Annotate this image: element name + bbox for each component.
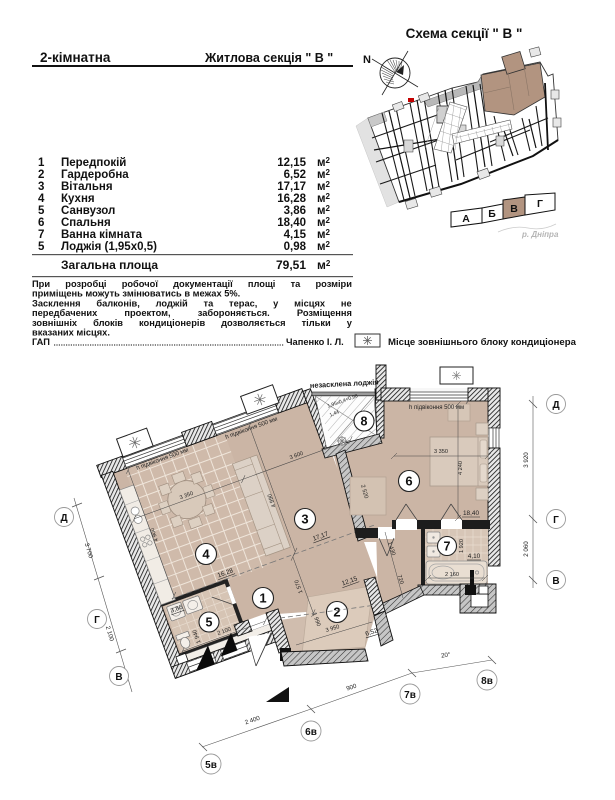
svg-text:вказаних місцях.: вказаних місцях. [32, 328, 110, 338]
svg-text:Засклення балконів, лоджій та: Засклення балконів, лоджій та терас, у м… [32, 298, 352, 308]
svg-text:4: 4 [38, 193, 45, 205]
svg-text:Вітальня: Вітальня [61, 181, 113, 193]
svg-text:5: 5 [38, 241, 45, 253]
svg-text:2 060: 2 060 [523, 541, 530, 557]
svg-text:5: 5 [206, 616, 213, 630]
svg-text:2-кімнатна: 2-кімнатна [40, 50, 111, 65]
svg-text:3 350: 3 350 [434, 449, 448, 455]
svg-text:3: 3 [38, 181, 44, 193]
svg-text:5в: 5в [205, 760, 217, 771]
svg-text:Лоджія (1,95х0,5): Лоджія (1,95х0,5) [61, 241, 157, 253]
svg-text:1: 1 [38, 157, 45, 169]
svg-text:0,98: 0,98 [284, 241, 307, 253]
svg-text:3 920: 3 920 [523, 452, 530, 468]
svg-text:Житлова секція " В ": Житлова секція " В " [204, 51, 333, 65]
svg-text:Схема секції " В ": Схема секції " В " [406, 26, 523, 41]
svg-text:Спальня: Спальня [61, 217, 111, 229]
svg-text:5: 5 [38, 205, 45, 217]
svg-text:Ванна кімната: Ванна кімната [61, 229, 143, 241]
svg-text:2 160: 2 160 [445, 572, 459, 578]
svg-text:8: 8 [361, 415, 368, 429]
svg-text:17,17: 17,17 [277, 181, 306, 193]
svg-text:Кухня: Кухня [61, 193, 95, 205]
svg-text:4: 4 [202, 547, 210, 562]
svg-text:4 240: 4 240 [458, 461, 464, 475]
svg-text:А: А [462, 213, 470, 225]
svg-text:Б: Б [488, 208, 496, 220]
svg-text:18,40: 18,40 [277, 217, 306, 229]
svg-text:Чапенко І. Л.: Чапенко І. Л. [286, 337, 344, 347]
svg-text:N: N [363, 54, 371, 66]
svg-text:2: 2 [38, 169, 44, 181]
svg-text:6в: 6в [305, 727, 317, 738]
svg-text:зовнішніх блоків кондиціонерів: зовнішніх блоків кондиціонерів дозволяєт… [32, 318, 353, 328]
svg-text:ГАП: ГАП [32, 337, 50, 347]
svg-text:Загальна площа: Загальна площа [61, 258, 158, 272]
svg-text:18,40: 18,40 [463, 510, 479, 517]
svg-text:7: 7 [38, 229, 44, 241]
svg-text:Гардеробна: Гардеробна [61, 169, 129, 181]
svg-text:передбачених проектом, заборон: передбачених проектом, забороняється. Ро… [32, 308, 352, 318]
svg-text:Передпокій: Передпокій [61, 157, 126, 169]
svg-text:В: В [552, 576, 559, 587]
svg-text:7в: 7в [404, 690, 416, 701]
svg-text:8в: 8в [481, 676, 493, 687]
svg-text:4,10: 4,10 [468, 553, 481, 560]
svg-text:1: 1 [259, 591, 266, 606]
svg-text:6: 6 [405, 474, 412, 489]
svg-text:Місце зовнішнього блоку кондиц: Місце зовнішнього блоку кондиціонера [388, 337, 577, 348]
svg-text:Г: Г [553, 515, 559, 526]
svg-text:В: В [510, 203, 518, 215]
svg-text:2: 2 [333, 605, 340, 620]
svg-text:Санвузол: Санвузол [61, 205, 115, 217]
svg-text:При розробці робочої документа: При розробці робочої документації площі … [32, 279, 352, 289]
svg-text:3,86: 3,86 [284, 205, 306, 217]
svg-text:4,15: 4,15 [284, 229, 307, 241]
svg-text:7: 7 [444, 540, 451, 554]
svg-text:Г: Г [537, 198, 543, 210]
svg-text:3: 3 [301, 512, 308, 527]
svg-text:16,28: 16,28 [277, 193, 306, 205]
svg-text:12,15: 12,15 [277, 157, 306, 169]
svg-text:6,52: 6,52 [284, 169, 306, 181]
svg-text:В: В [115, 672, 122, 683]
svg-text:приміщень можуть змінюватись в: приміщень можуть змінюватись в межах 5%. [32, 289, 240, 299]
svg-text:Д: Д [552, 400, 559, 411]
svg-text:79,51: 79,51 [276, 258, 306, 272]
svg-text:1 920: 1 920 [459, 539, 465, 553]
svg-text:Г: Г [94, 615, 100, 626]
svg-text:6: 6 [38, 217, 44, 229]
svg-text:Д: Д [60, 513, 67, 524]
svg-text:20°: 20° [441, 651, 452, 659]
svg-text:р. Дніпра: р. Дніпра [521, 230, 559, 239]
